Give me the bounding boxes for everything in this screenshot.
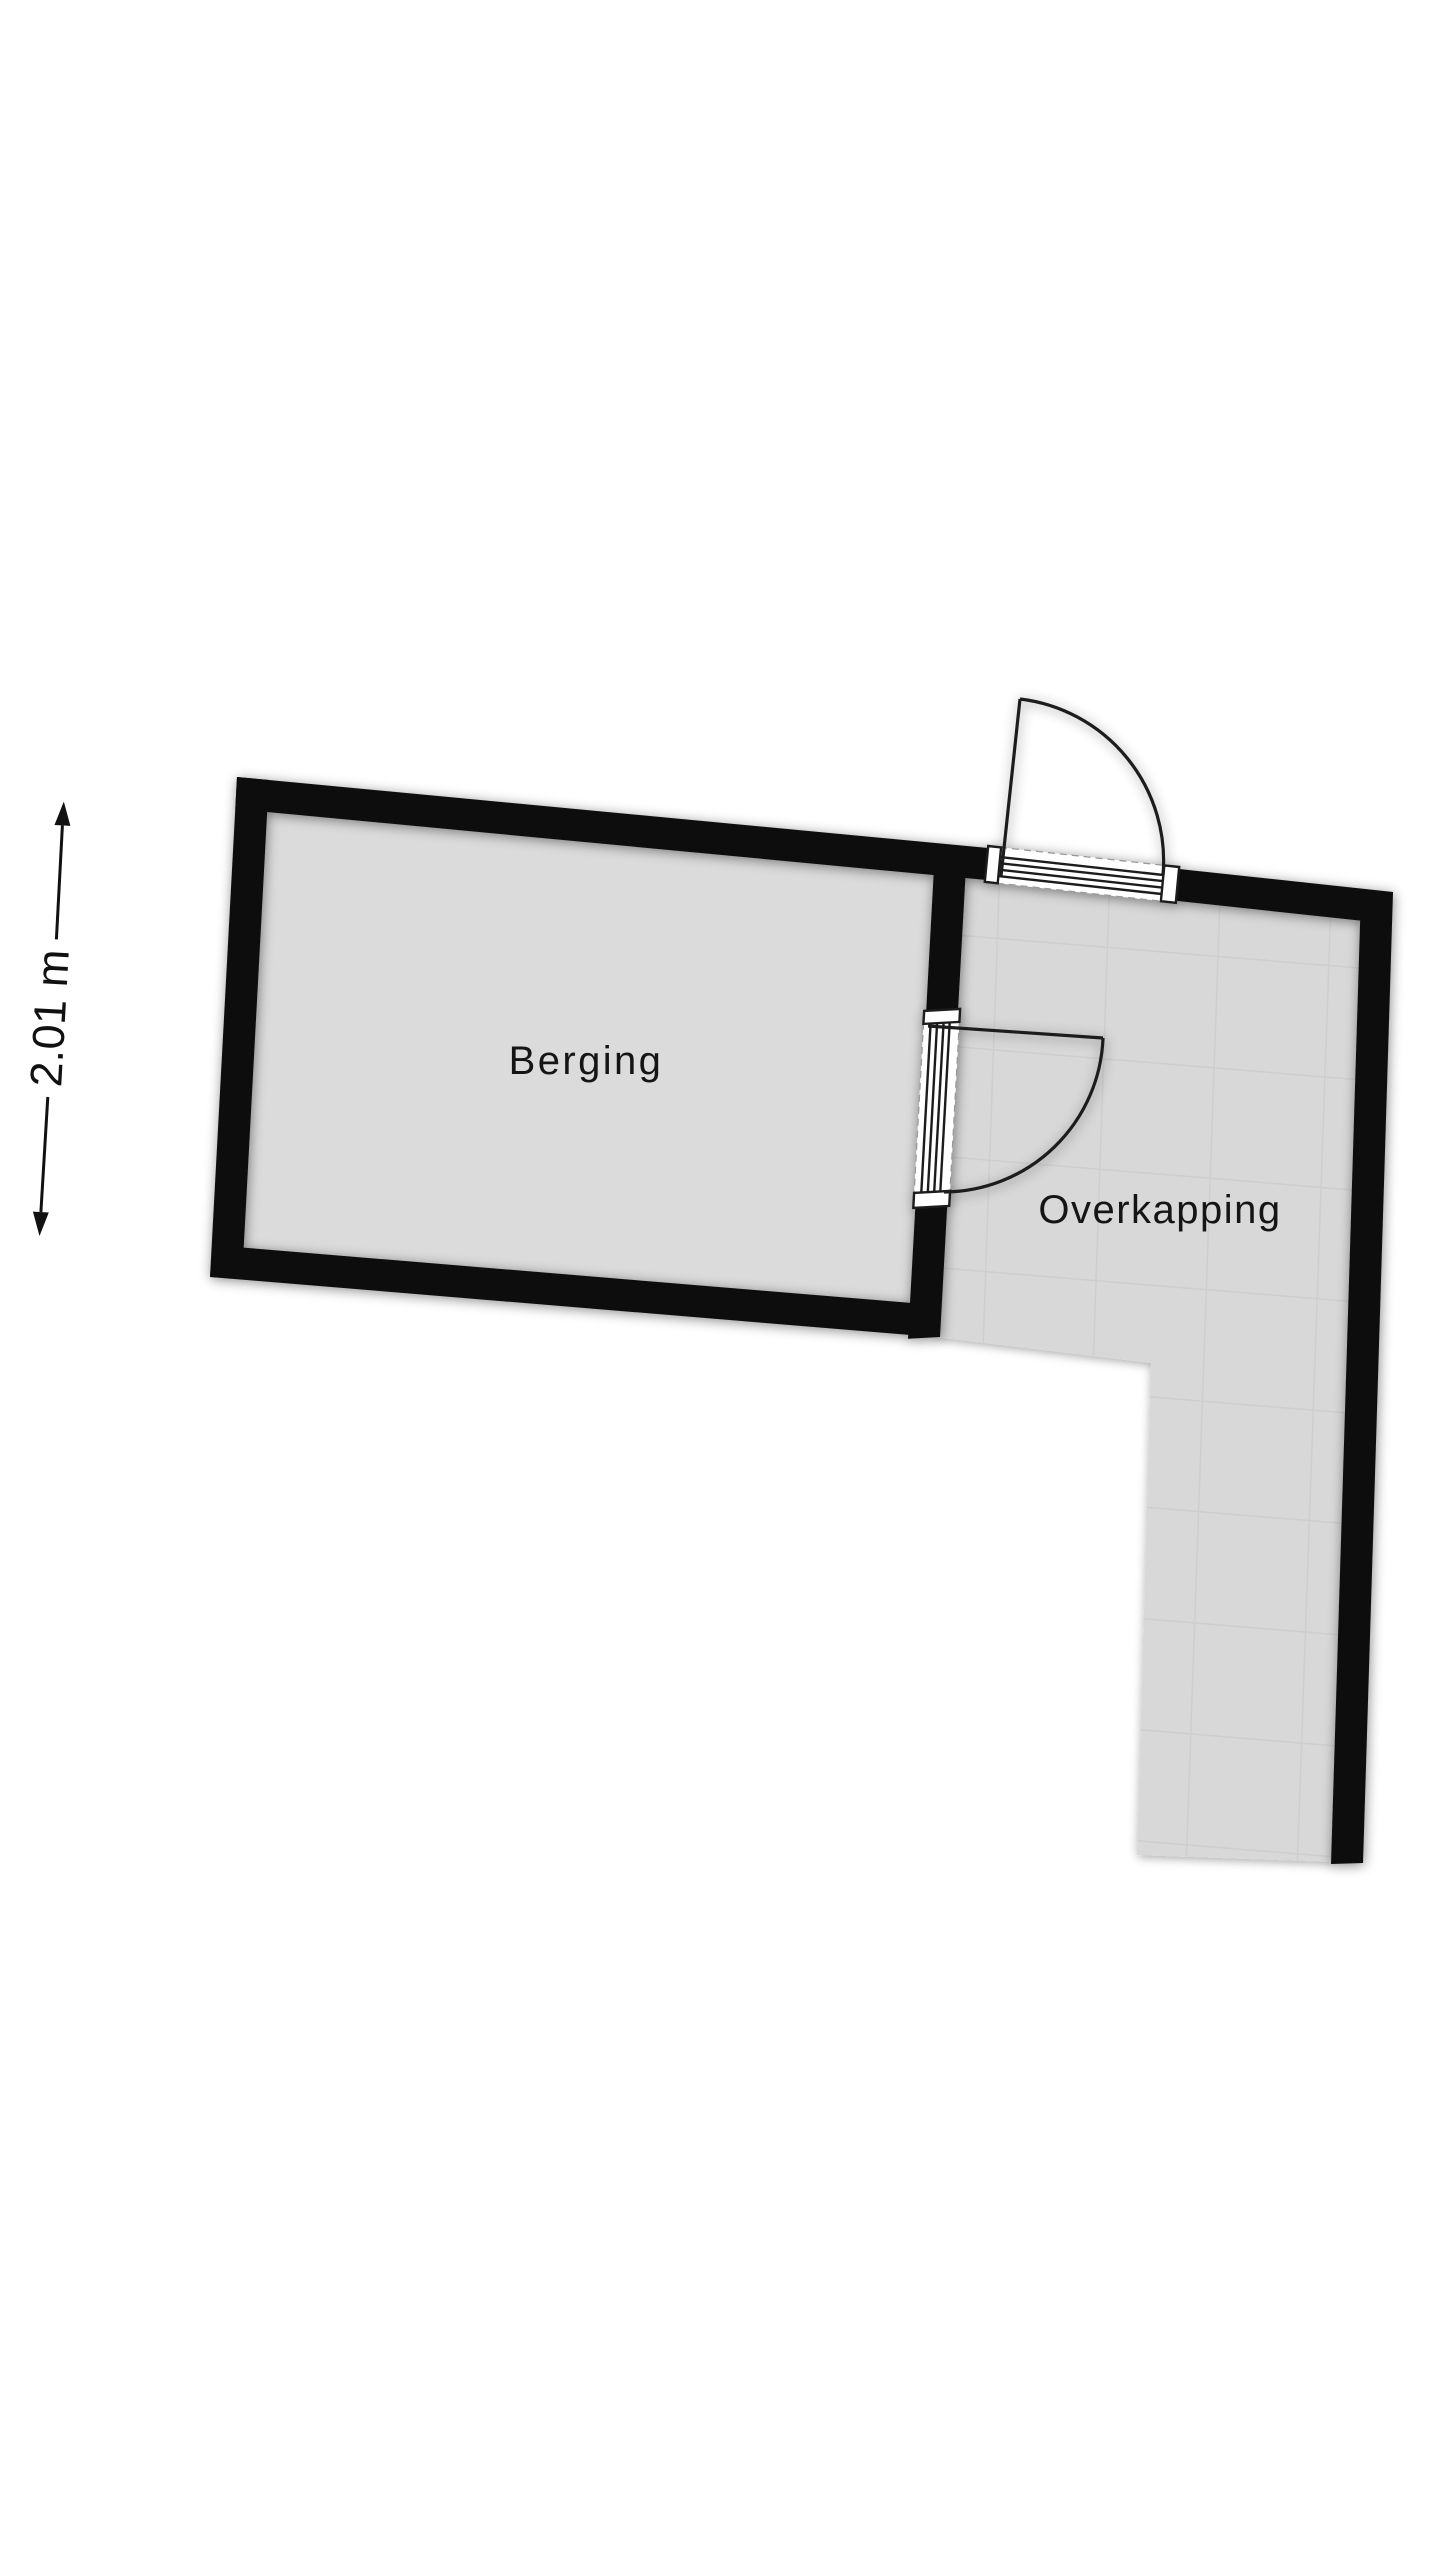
- svg-text:Overkapping: Overkapping: [1038, 1188, 1281, 1232]
- svg-text:Berging: Berging: [509, 1039, 664, 1083]
- svg-text:2.01 m: 2.01 m: [20, 948, 79, 1088]
